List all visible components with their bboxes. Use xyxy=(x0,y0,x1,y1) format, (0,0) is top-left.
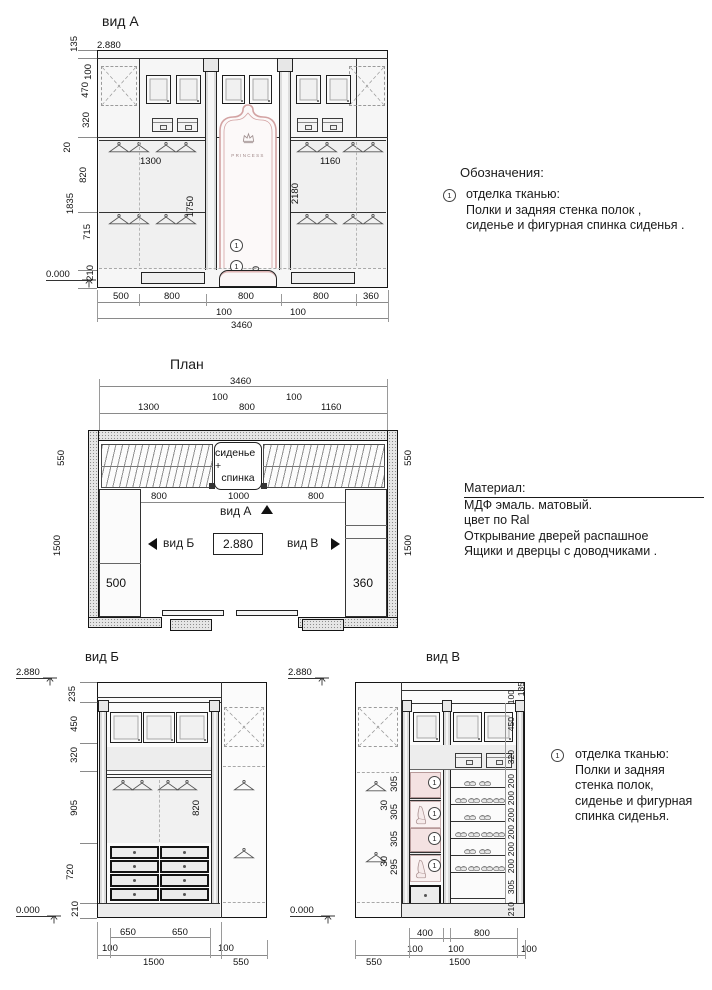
legend-block-2: 1 отделка тканью: Полки и задняя стенка … xyxy=(0,0,712,990)
legend-line: Полки и задняя xyxy=(575,763,712,779)
legend-line: стенка полок, xyxy=(575,778,712,794)
legend-line: отделка тканью: xyxy=(575,747,712,763)
callout-1: 1 xyxy=(551,749,564,762)
legend-line: сиденье и фигурная xyxy=(575,794,712,810)
legend-line: спинка сиденья. xyxy=(575,809,712,825)
seat-label-line1: сиденье + xyxy=(215,447,261,472)
legend-text: отделка тканью: Полки и задняя стенка по… xyxy=(575,747,712,825)
drawing-sheet: вид А 2.880 0.000 xyxy=(0,0,712,990)
seat-label-line2: спинка xyxy=(221,472,254,485)
seat-plan-box: сиденье + спинка xyxy=(214,442,262,490)
